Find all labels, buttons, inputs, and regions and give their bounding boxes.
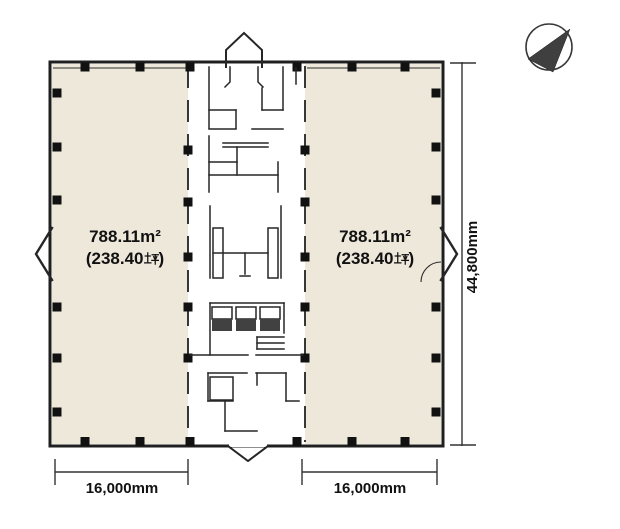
core-lower-rooms <box>208 373 299 431</box>
toilet-stalls <box>212 307 280 331</box>
vertical-dimension-label: 44,800mm <box>464 184 481 330</box>
right-unit-area-sqm: 788.11m² <box>305 226 445 248</box>
left-unit-area-label: 788.11m² (238.40) <box>55 226 195 270</box>
north-arrow-icon <box>526 24 572 72</box>
right-unit-area-label: 788.11m² (238.40) <box>305 226 445 270</box>
bottom-left-dimension-label: 16,000mm <box>52 480 192 497</box>
core-walls <box>188 66 305 442</box>
core-service-room <box>209 136 278 192</box>
left-unit-area-sqm: 788.11m² <box>55 226 195 248</box>
floor-plan-page: 788.11m² (238.40) 788.11m² (238.40) 44,8… <box>0 0 620 529</box>
bottom-exit-arrow <box>228 440 268 461</box>
core-stairwell-rooms <box>209 67 296 129</box>
tsubo-character-glyph <box>144 251 159 266</box>
right-unit-area-tsubo: (238.40) <box>305 248 445 270</box>
top-exit-arrow <box>225 33 263 87</box>
core-toilets <box>190 303 303 355</box>
bottom-right-dimension-label: 16,000mm <box>300 480 440 497</box>
core-elevator-bank <box>210 206 281 278</box>
tsubo-character-glyph <box>394 251 409 266</box>
left-unit-area-tsubo: (238.40) <box>55 248 195 270</box>
